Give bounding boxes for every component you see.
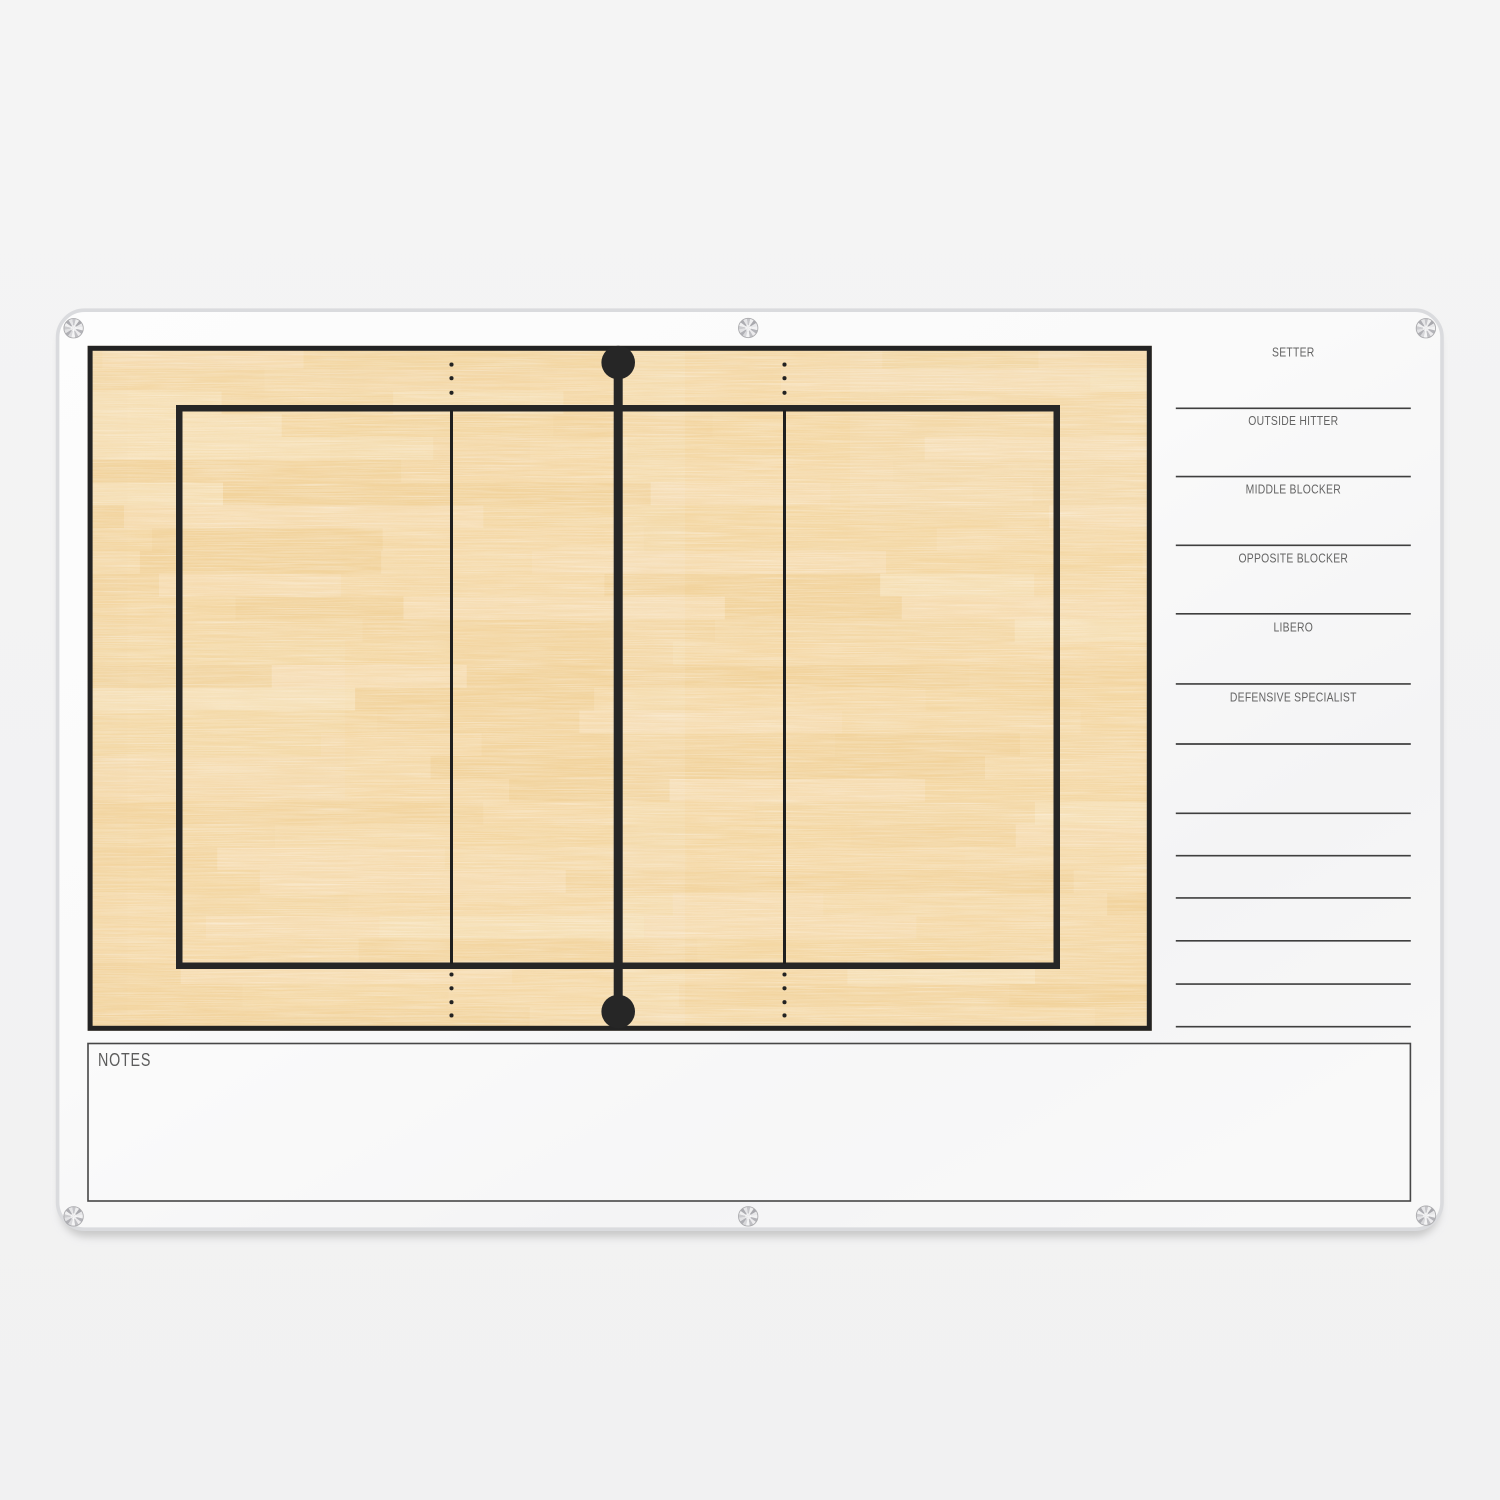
svg-text:OUTSIDE HITTER: OUTSIDE HITTER [1248, 413, 1338, 429]
svg-text:NOTES: NOTES [98, 1050, 151, 1070]
svg-text:OPPOSITE BLOCKER: OPPOSITE BLOCKER [1238, 550, 1348, 566]
svg-text:LIBERO: LIBERO [1273, 619, 1313, 635]
svg-text:DEFENSIVE SPECIALIST: DEFENSIVE SPECIALIST [1230, 689, 1357, 705]
svg-text:MIDDLE BLOCKER: MIDDLE BLOCKER [1246, 481, 1341, 497]
svg-text:SETTER: SETTER [1272, 344, 1315, 360]
